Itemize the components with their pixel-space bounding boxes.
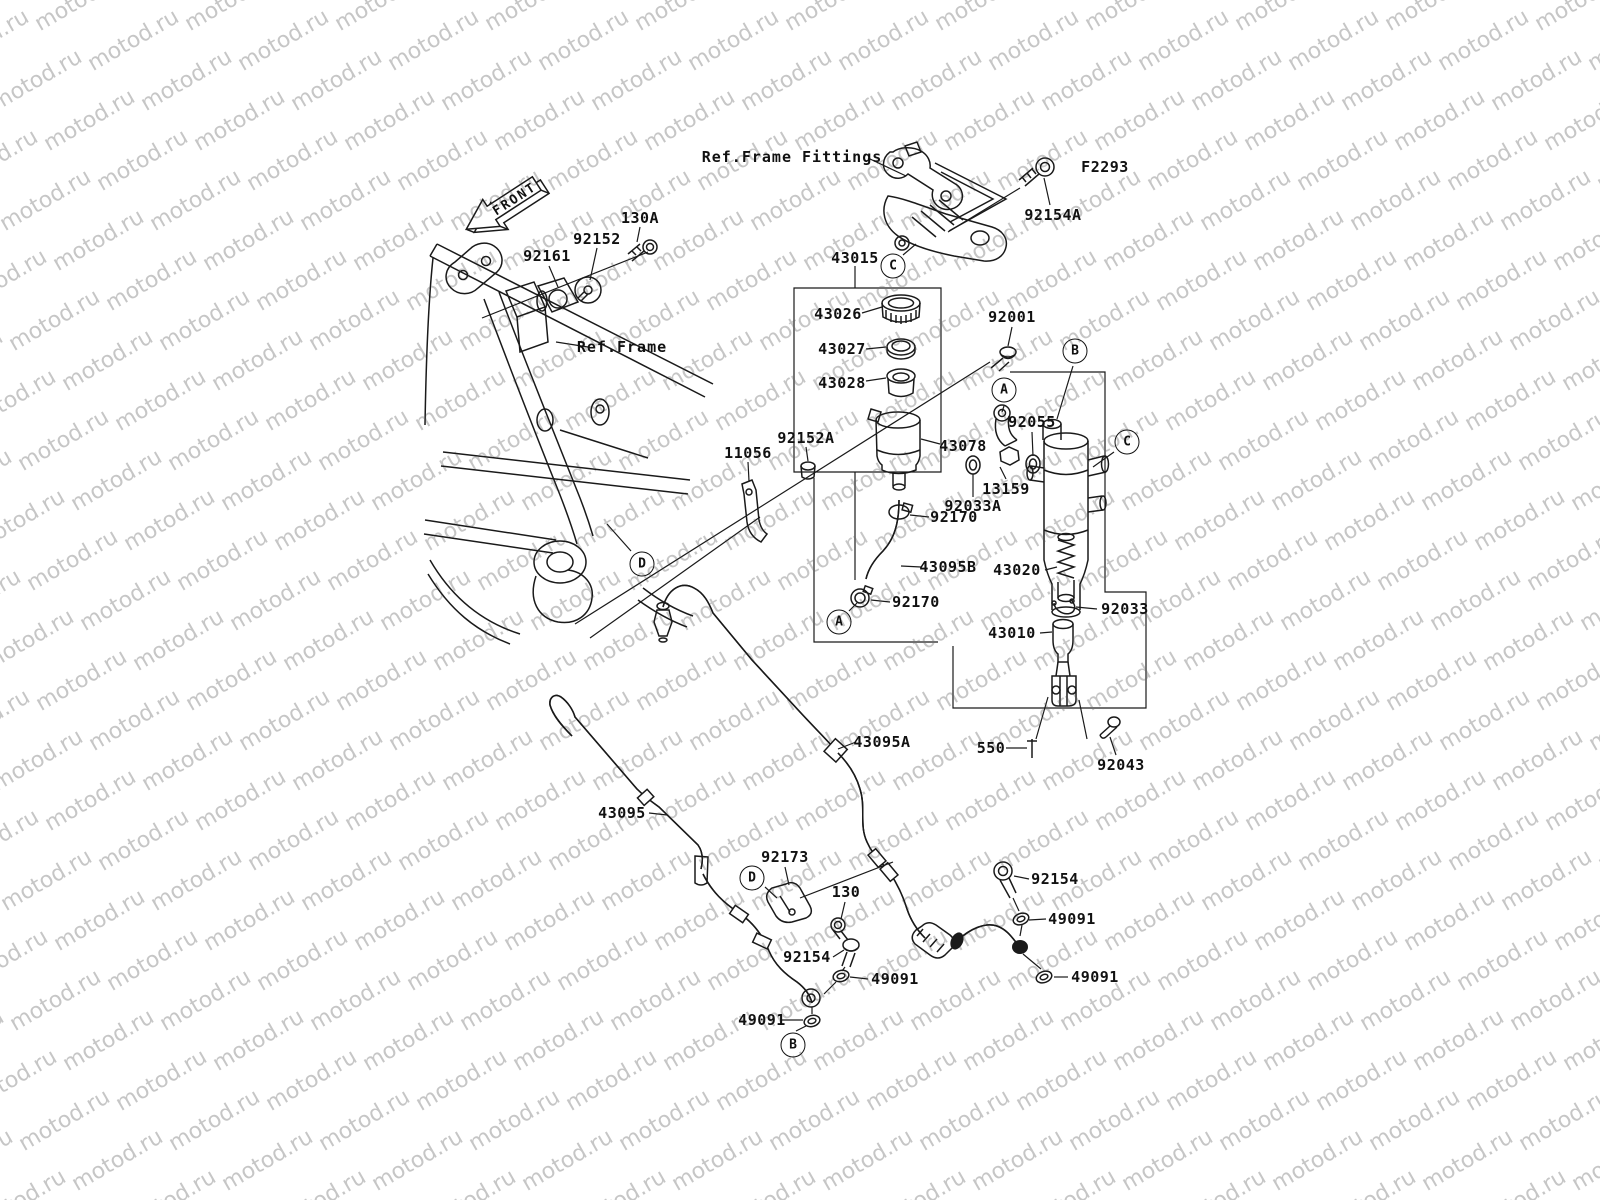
part-number-label: 49091 [871,970,919,988]
part-number-label: 92161 [523,247,571,265]
callout-circle-a: A [827,610,852,635]
part-number-label: 92043 [1097,756,1145,774]
part-number-label: 550 [977,739,1006,757]
part-number-label: 130 [832,883,861,901]
callout-circle-d: D [630,552,655,577]
callout-circle-c: C [1115,430,1140,455]
reference-label: Ref.Frame [577,338,667,356]
part-number-label: 92170 [892,593,940,611]
callout-circle-b: B [1063,339,1088,364]
part-number-label: 43020 [993,561,1041,579]
parts-diagram-page: FRONT [0,0,1600,1200]
part-number-label: 92001 [988,308,1036,326]
part-number-label: 43095A [853,733,910,751]
part-number-label: 92154 [783,948,831,966]
reference-label: Ref.Frame Fittings [702,148,883,166]
callout-circle-a: A [992,378,1017,403]
part-number-label: 49091 [1048,910,1096,928]
figure-code: F2293 [1081,158,1129,176]
part-number-label: 92170 [930,508,978,526]
part-number-label: 49091 [1071,968,1119,986]
part-number-label: 11056 [724,444,772,462]
part-number-label: 43010 [988,624,1036,642]
part-number-label: 43078 [939,437,987,455]
callout-circle-d: D [740,866,765,891]
part-number-label: 92154A [1024,206,1081,224]
part-number-label: 92154 [1031,870,1079,888]
part-number-label: 43095 [598,804,646,822]
part-number-label: 92152A [777,429,834,447]
part-number-label: 43026 [814,305,862,323]
part-number-label: 130A [621,209,659,227]
part-number-label: 49091 [738,1011,786,1029]
labels-layer: F2293 92154A130A921529216143015430269200… [0,0,1600,1200]
part-number-label: 43095B [919,558,976,576]
part-number-label: 92173 [761,848,809,866]
part-number-label: 92033 [1101,600,1149,618]
part-number-label: 43028 [818,374,866,392]
part-number-label: 43015 [831,249,879,267]
part-number-label: 92152 [573,230,621,248]
part-number-label: 13159 [982,480,1030,498]
callout-circle-b: B [781,1033,806,1058]
part-number-label: 43027 [818,340,866,358]
callout-circle-c: C [881,254,906,279]
part-number-label: 92055 [1008,413,1056,431]
